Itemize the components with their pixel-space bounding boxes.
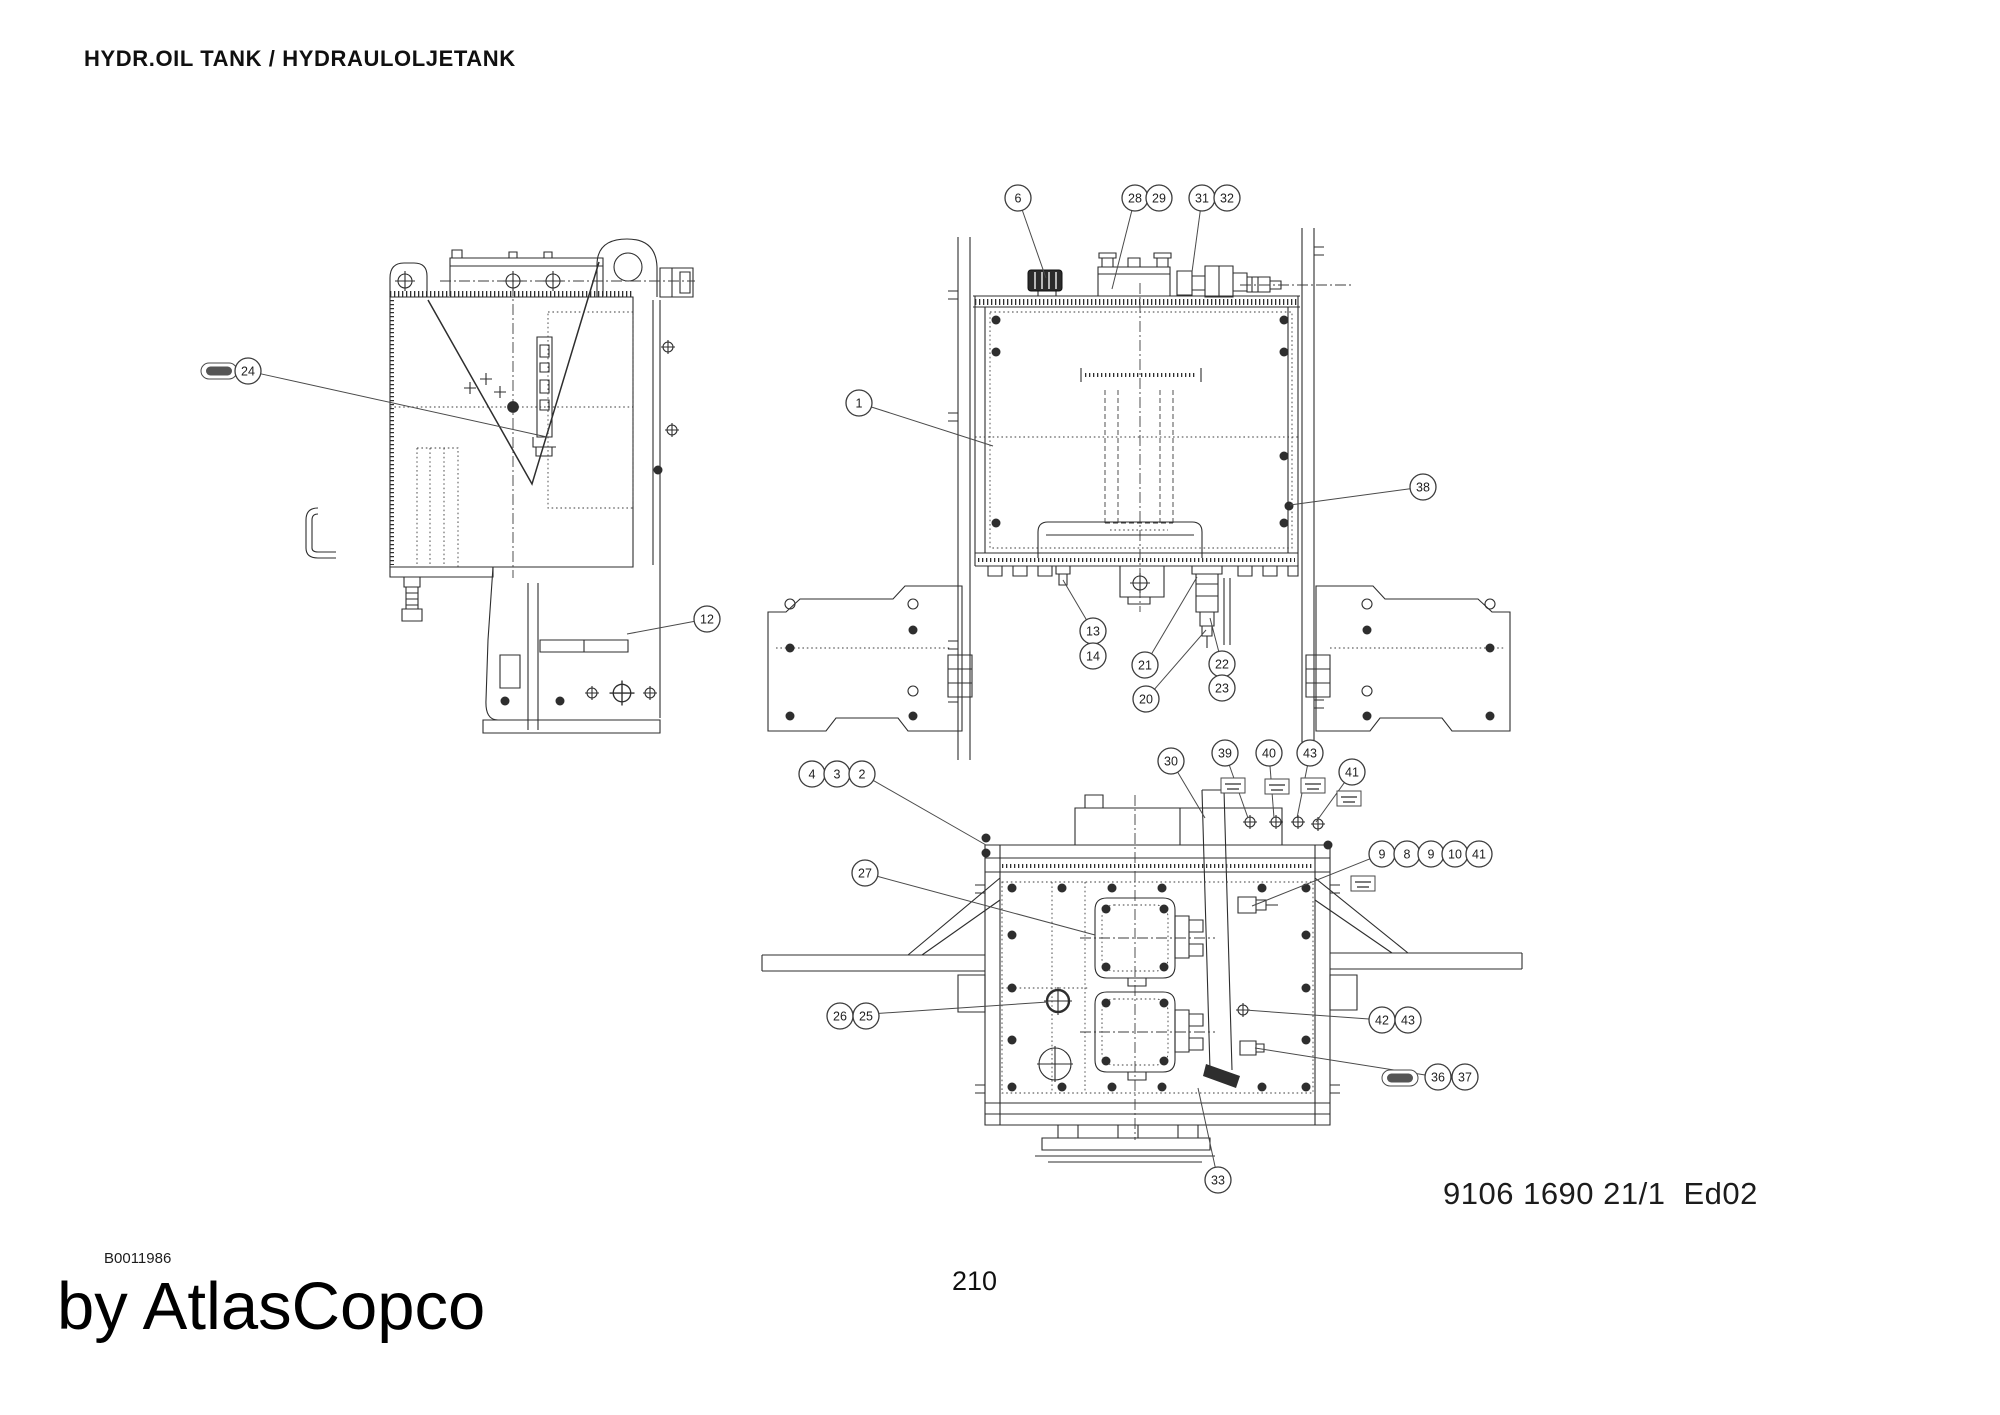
callout-number-24: 24 [241,365,255,379]
callout-number-41: 41 [1345,766,1359,780]
bottom-view-bolt-dots [1008,884,1311,1092]
callout-9: 9 [1418,841,1444,867]
callout-10: 10 [1442,841,1468,867]
callout-number-40: 40 [1262,747,1276,761]
callout-number-25: 25 [859,1010,873,1024]
callout-number-29: 29 [1152,192,1166,206]
callout-number-2: 2 [859,768,866,782]
callout-number-20: 20 [1139,693,1153,707]
leader-line-20 [1155,630,1206,689]
callout-2: 2 [849,761,986,845]
callout-39: 39 [1212,740,1248,818]
callout-number-10: 10 [1448,848,1462,862]
callout-number-23: 23 [1215,682,1229,696]
callout-27: 27 [852,860,1095,935]
brand-signature: by AtlasCopco [57,1268,485,1345]
callout-28: 28 [1112,185,1148,289]
callout-number-36: 36 [1431,1071,1445,1085]
front-view-drawing [768,228,1510,760]
callout-number-9: 9 [1379,848,1386,862]
callout-31: 31 [1189,185,1215,272]
callout-number-1: 1 [856,397,863,411]
port-flag [1337,791,1361,806]
callout-number-6: 6 [1015,192,1022,206]
callout-22: 22 [1209,618,1235,677]
callout-number-43: 43 [1303,747,1317,761]
leader-line-42 [1245,1010,1369,1019]
note-pill-marking [206,367,232,376]
callout-14: 14 [1080,643,1106,669]
callout-23: 23 [1209,675,1235,701]
callout-42: 42 [1245,1007,1395,1033]
parts-catalog-page: { "page": { "title": "HYDR.OIL TANK / HY… [0,0,2000,1415]
callout-29: 29 [1146,185,1172,211]
callout-number-14: 14 [1086,650,1100,664]
callout-number-22: 22 [1215,658,1229,672]
document-number-value: 9106 1690 21/1 [1443,1176,1666,1211]
leader-line-26 [853,1002,1048,1015]
leader-line-21 [1152,577,1197,654]
callout-number-3: 3 [834,768,841,782]
callout-37: 37 [1452,1064,1478,1090]
callout-36: 36 [1255,1048,1451,1090]
callout-number-33: 33 [1211,1174,1225,1188]
callout-number-28: 28 [1128,192,1142,206]
callout-12: 12 [627,606,720,634]
callout-43: 43 [1395,1007,1421,1033]
leader-line-38 [1290,489,1410,505]
port-flag [1301,778,1325,793]
callout-41: 41 [1466,841,1492,867]
callout-number-8: 8 [1404,848,1411,862]
callout-40: 40 [1256,740,1289,818]
port-flag [1221,778,1245,793]
callout-number-38: 38 [1416,481,1430,495]
callout-number-31: 31 [1195,192,1209,206]
leader-line-24 [261,374,547,437]
callout-32: 32 [1214,185,1240,211]
callout-number-27: 27 [858,867,872,881]
leader-line-30 [1178,772,1205,818]
callout-number-21: 21 [1138,659,1152,673]
callout-number-41: 41 [1472,848,1486,862]
leader-line-6 [1022,210,1046,278]
callout-25: 25 [853,1003,879,1029]
callout-1: 1 [846,390,993,446]
callout-6: 6 [1005,185,1046,278]
callout-number-37: 37 [1458,1071,1472,1085]
document-edition: Ed02 [1684,1176,1758,1211]
leader-line-2 [873,780,986,845]
callout-number-12: 12 [700,613,714,627]
document-number: 9106 1690 21/1Ed02 [1443,1176,1758,1212]
callout-24: 24 [201,358,547,437]
leader-line-28 [1112,211,1132,289]
leader-line-12 [627,621,694,634]
callout-number-4: 4 [809,768,816,782]
callout-13: 13 [1063,580,1106,644]
callout-9: 9 [1252,841,1395,906]
callout-43: 43 [1297,740,1325,818]
side-view-drawing [306,239,695,733]
port-flag [1265,779,1289,794]
port-flag [1351,876,1375,891]
callout-3: 3 [824,761,850,787]
leader-line-13 [1063,580,1086,620]
callout-number-39: 39 [1218,747,1232,761]
leader-line-33 [1198,1088,1215,1167]
page-number: 210 [952,1266,997,1297]
callout-33: 33 [1198,1088,1231,1193]
leader-line-31 [1192,211,1200,272]
callout-number-9: 9 [1428,848,1435,862]
figure-code: B0011986 [104,1250,171,1267]
callout-8: 8 [1394,841,1420,867]
callout-38: 38 [1290,474,1436,505]
callout-4: 4 [799,761,825,787]
callout-number-30: 30 [1164,755,1178,769]
callout-number-13: 13 [1086,625,1100,639]
callout-number-42: 42 [1375,1014,1389,1028]
callout-number-26: 26 [833,1010,847,1024]
callout-number-43: 43 [1401,1014,1415,1028]
note-pill-marking [1387,1074,1413,1083]
callout-number-32: 32 [1220,192,1234,206]
